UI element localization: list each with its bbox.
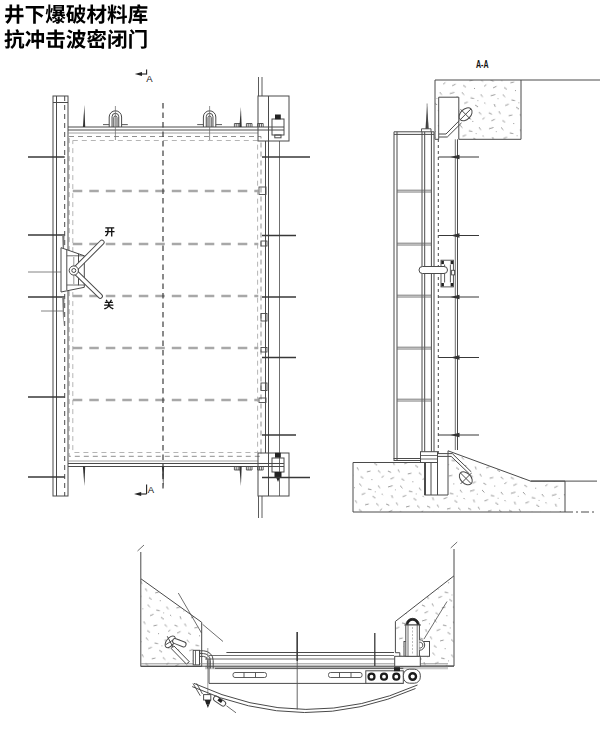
- svg-text:A-A: A-A: [476, 58, 489, 70]
- svg-text:A: A: [148, 484, 155, 495]
- svg-text:A: A: [146, 73, 153, 84]
